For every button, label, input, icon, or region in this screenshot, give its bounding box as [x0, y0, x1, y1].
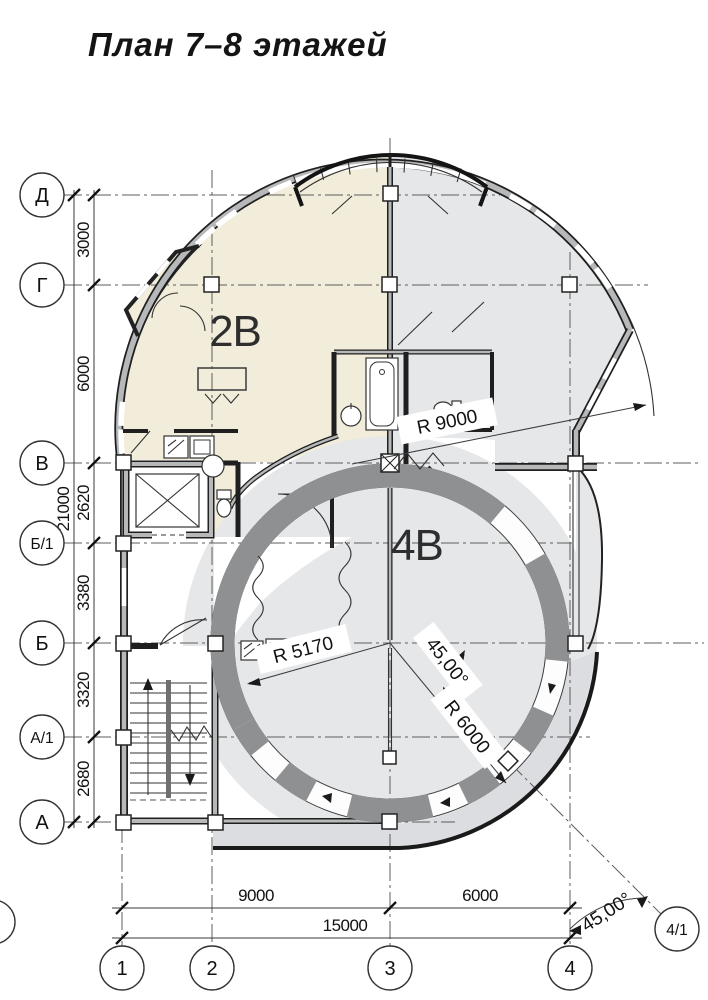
axis-label-a1: А/1: [30, 730, 53, 747]
dim-left-5: 2680: [74, 761, 93, 797]
bottom-angle-label: 45,00°: [578, 889, 636, 937]
axis-label-a: А: [35, 812, 49, 834]
axis-label-4: 4: [564, 958, 575, 980]
dim-left-2: 2620: [74, 485, 93, 521]
toilet-core: [217, 490, 231, 517]
dim-bottom-total: 15000: [323, 916, 368, 935]
axis-label-3: 3: [384, 958, 395, 980]
dim-left-total: 21000: [54, 487, 73, 532]
dim-bottom-0: 9000: [238, 886, 274, 905]
axis-label-b: Б: [35, 633, 48, 655]
elevator: [126, 464, 211, 535]
bottom-angle-callout: 45,00°: [569, 889, 648, 937]
axis-label-1: 1: [116, 958, 127, 980]
floor-plan-canvas: R 9000 R 5170 45,00° R 6000: [0, 0, 708, 1000]
axis-label-2: 2: [206, 958, 217, 980]
axis-label-b1: Б/1: [30, 536, 53, 553]
axis-label-v: В: [35, 453, 48, 475]
dim-left-3: 3380: [74, 575, 93, 611]
dim-left-1: 6000: [74, 356, 93, 392]
dim-left-4: 3320: [74, 672, 93, 708]
bathtub: [366, 358, 398, 430]
axis-label-41: 4/1: [666, 922, 688, 939]
axis-label-d: Д: [35, 185, 49, 207]
apartment-label-2v: 2В: [209, 307, 261, 356]
drawing-sheet: R 9000 R 5170 45,00° R 6000: [0, 0, 708, 1000]
dim-bottom-1: 6000: [462, 886, 498, 905]
apartment-label-4v: 4В: [391, 521, 443, 570]
bottom-dimension-lines: 9000 6000 15000: [112, 886, 582, 944]
stair-stringer: [166, 680, 171, 798]
drawing-title: План 7–8 этажей: [88, 26, 388, 63]
axis-label-g: Г: [37, 275, 48, 297]
dim-left-0: 3000: [74, 222, 93, 258]
